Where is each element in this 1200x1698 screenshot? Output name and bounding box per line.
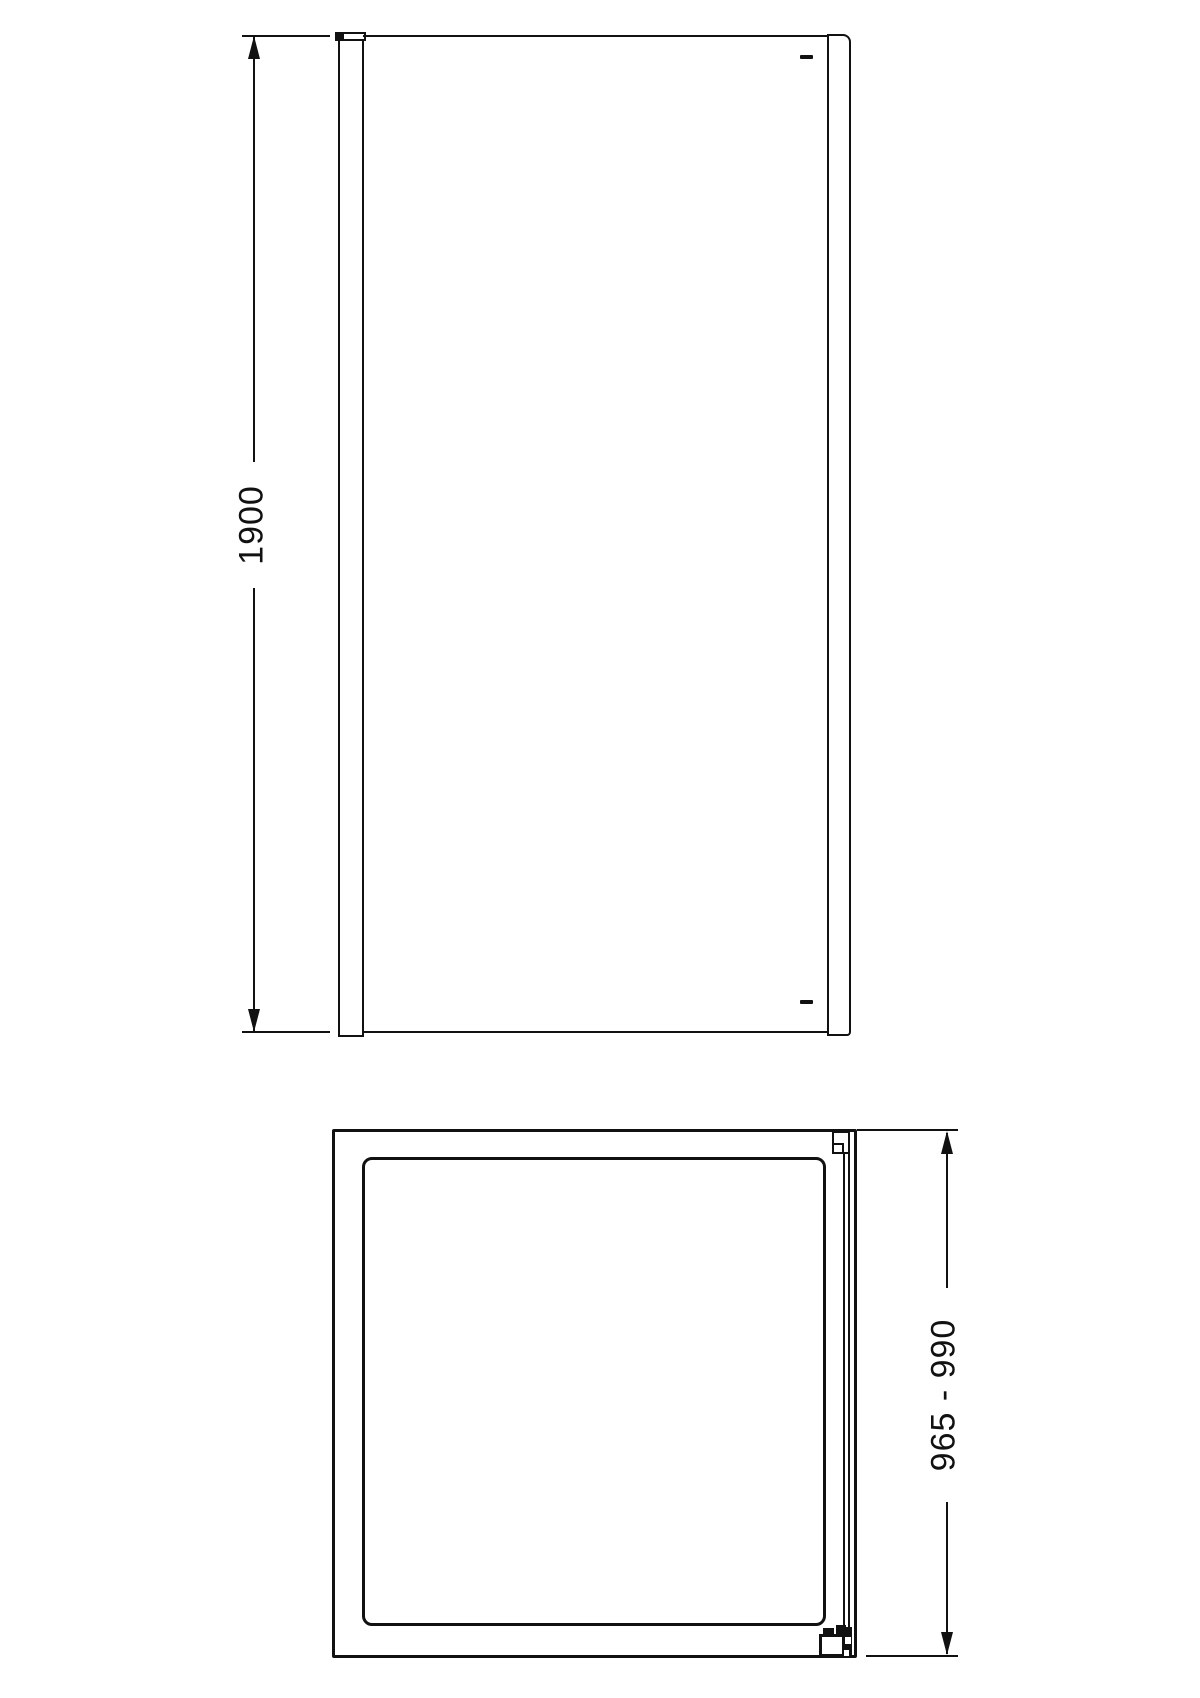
bracket-mark-bottom [800, 1000, 813, 1004]
right-frame-profile [827, 34, 851, 1036]
depth-extension-line-bottom [866, 1655, 958, 1657]
height-dimension-line-upper [253, 37, 255, 462]
arrow-up-icon [248, 36, 260, 59]
bracket-mark-top [800, 55, 813, 59]
wall-bracket-bottom-bar-notch-2 [844, 1650, 849, 1656]
glass-panel-line-outer [843, 1154, 845, 1630]
technical-drawing-canvas: 1900 [0, 0, 1200, 1698]
arrow-down-icon [941, 1632, 953, 1655]
height-dimension-line-lower [253, 588, 255, 1032]
arrow-down-icon [248, 1009, 260, 1032]
wall-profile-cap-end [336, 33, 344, 40]
wall-bracket-bottom-bump-left [823, 1628, 834, 1636]
glass-bottom-edge [363, 1031, 829, 1033]
glass-panel-line-inner [848, 1154, 850, 1630]
arrow-up-icon [941, 1131, 953, 1154]
wall-bracket-top-notch [832, 1143, 844, 1154]
depth-dimension-line-upper [946, 1133, 948, 1288]
tray-inner-edge [362, 1157, 826, 1626]
glass-top-edge [363, 35, 829, 37]
depth-dimension-label: 965 - 990 [923, 1309, 966, 1482]
wall-profile [338, 33, 364, 1037]
height-dimension-label: 1900 [231, 475, 274, 575]
wall-bracket-bottom-bar-notch-1 [845, 1637, 851, 1644]
